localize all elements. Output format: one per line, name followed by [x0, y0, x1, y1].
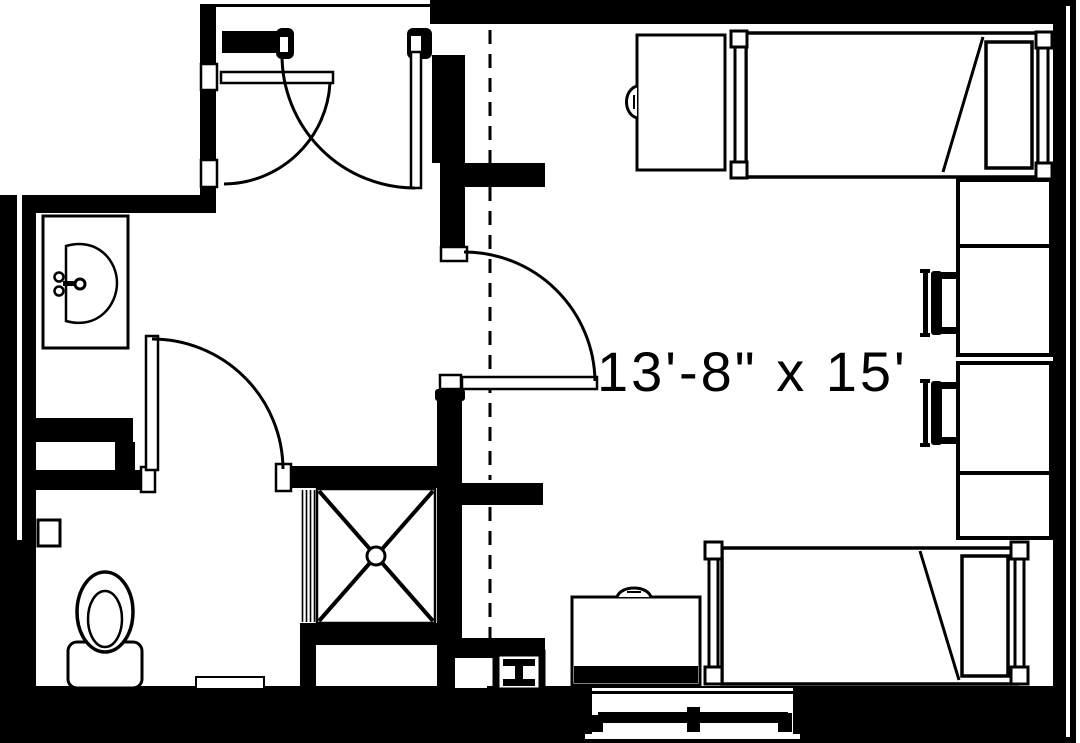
bedroom-door-hinge-jamb [441, 247, 467, 261]
bed-post [731, 31, 747, 47]
bed-post [705, 667, 722, 684]
chase-wall-bottom [23, 470, 143, 490]
bath-mat [196, 677, 264, 689]
shower-wall-left [300, 645, 316, 692]
bathroom-door-leaf [146, 336, 158, 470]
closet-door-swing-arc [224, 83, 330, 184]
room-dimension-label: 13'-8" x 15' [597, 340, 908, 403]
bed-1 [731, 31, 1052, 179]
closet-door-hinge-jamb [201, 64, 217, 90]
shower-wall-top [287, 466, 437, 488]
top-wall [430, 0, 1076, 24]
bottom-wall [0, 686, 1076, 743]
entry-wall-stub [222, 31, 281, 53]
jamb-notch [411, 36, 421, 53]
faucet-handle [55, 273, 64, 282]
bed-rail [735, 45, 746, 167]
faucet-spout [63, 281, 75, 286]
shower-drain-icon [367, 547, 385, 565]
bed-rail [709, 559, 718, 667]
toilet-paper-holder [38, 520, 60, 546]
hutch-body [958, 363, 1051, 538]
shower-door-tracks [303, 490, 315, 622]
window-mullion [687, 707, 700, 732]
closet-door-strike-jamb [201, 160, 217, 187]
bedroom-wall-stub [462, 483, 543, 505]
bathroom-top-wall [0, 195, 216, 213]
window-outer-gap [585, 734, 800, 739]
bed-post [1011, 542, 1028, 559]
chair-arm [941, 272, 958, 279]
bed-post [731, 162, 747, 178]
bed-rail [1038, 48, 1048, 168]
toilet-bowl-inner [88, 591, 122, 647]
right-wall-seam [1066, 6, 1070, 737]
bed-pillow [962, 556, 1008, 676]
left-wall-seam [17, 195, 22, 540]
chair-seat [931, 271, 942, 335]
shower [303, 489, 436, 623]
window [585, 688, 800, 739]
bed-2 [705, 542, 1028, 684]
desk-chair-1 [920, 269, 958, 337]
bedroom-door-leaf [462, 377, 597, 389]
window-stop-left [590, 715, 603, 732]
door-jamb-block [435, 389, 465, 401]
window-inner-sill-line [592, 691, 793, 694]
bed-post [705, 542, 722, 559]
chase-wall-side [115, 442, 135, 472]
floor-plan: 13'-8" x 15' [0, 0, 1080, 743]
corridor-cut-line [205, 4, 435, 7]
partition-wall-stub [463, 163, 545, 187]
wardrobe-knob-icon [627, 86, 638, 118]
desk [572, 588, 700, 685]
bedroom-door-swing-arc [464, 252, 595, 381]
desk-hutch-2 [958, 363, 1051, 538]
steel-column [496, 653, 542, 691]
chair-arm [941, 382, 958, 389]
bed-post [1011, 667, 1028, 684]
wardrobe [627, 35, 726, 170]
right-wall [1053, 0, 1076, 743]
bathroom-door-swing-arc [152, 339, 283, 469]
wardrobe-body [637, 35, 725, 170]
hutch-body [958, 180, 1051, 355]
window-stop-right [778, 713, 792, 732]
floor-plan-page: 13'-8" x 15' [0, 0, 1080, 743]
desk-back-panel [574, 666, 698, 683]
bedroom-door-strike-jamb [440, 375, 461, 389]
closet-door-leaf [221, 72, 333, 83]
chair-back [923, 381, 928, 445]
chair-back [923, 271, 928, 335]
partition-wall-upper [432, 55, 465, 163]
partition-wall-mid [440, 163, 465, 248]
toilet [68, 572, 142, 688]
bed-pillow [986, 42, 1032, 168]
ibeam-web [515, 664, 523, 681]
bed-post [1036, 163, 1052, 179]
desk-hutch-1 [958, 180, 1051, 355]
jamb-notch [280, 37, 288, 52]
desk-chair-2 [920, 379, 958, 447]
entry-door-leaf [411, 52, 421, 188]
chair-seat [931, 381, 942, 445]
bed-rail [1015, 559, 1024, 667]
faucet-head [75, 279, 85, 289]
faucet-handle [55, 287, 64, 296]
chase-wall-top [30, 418, 133, 442]
wall-niche [455, 658, 487, 688]
chair-arm [941, 327, 958, 334]
bed-post [1036, 32, 1052, 48]
chair-arm [941, 437, 958, 444]
